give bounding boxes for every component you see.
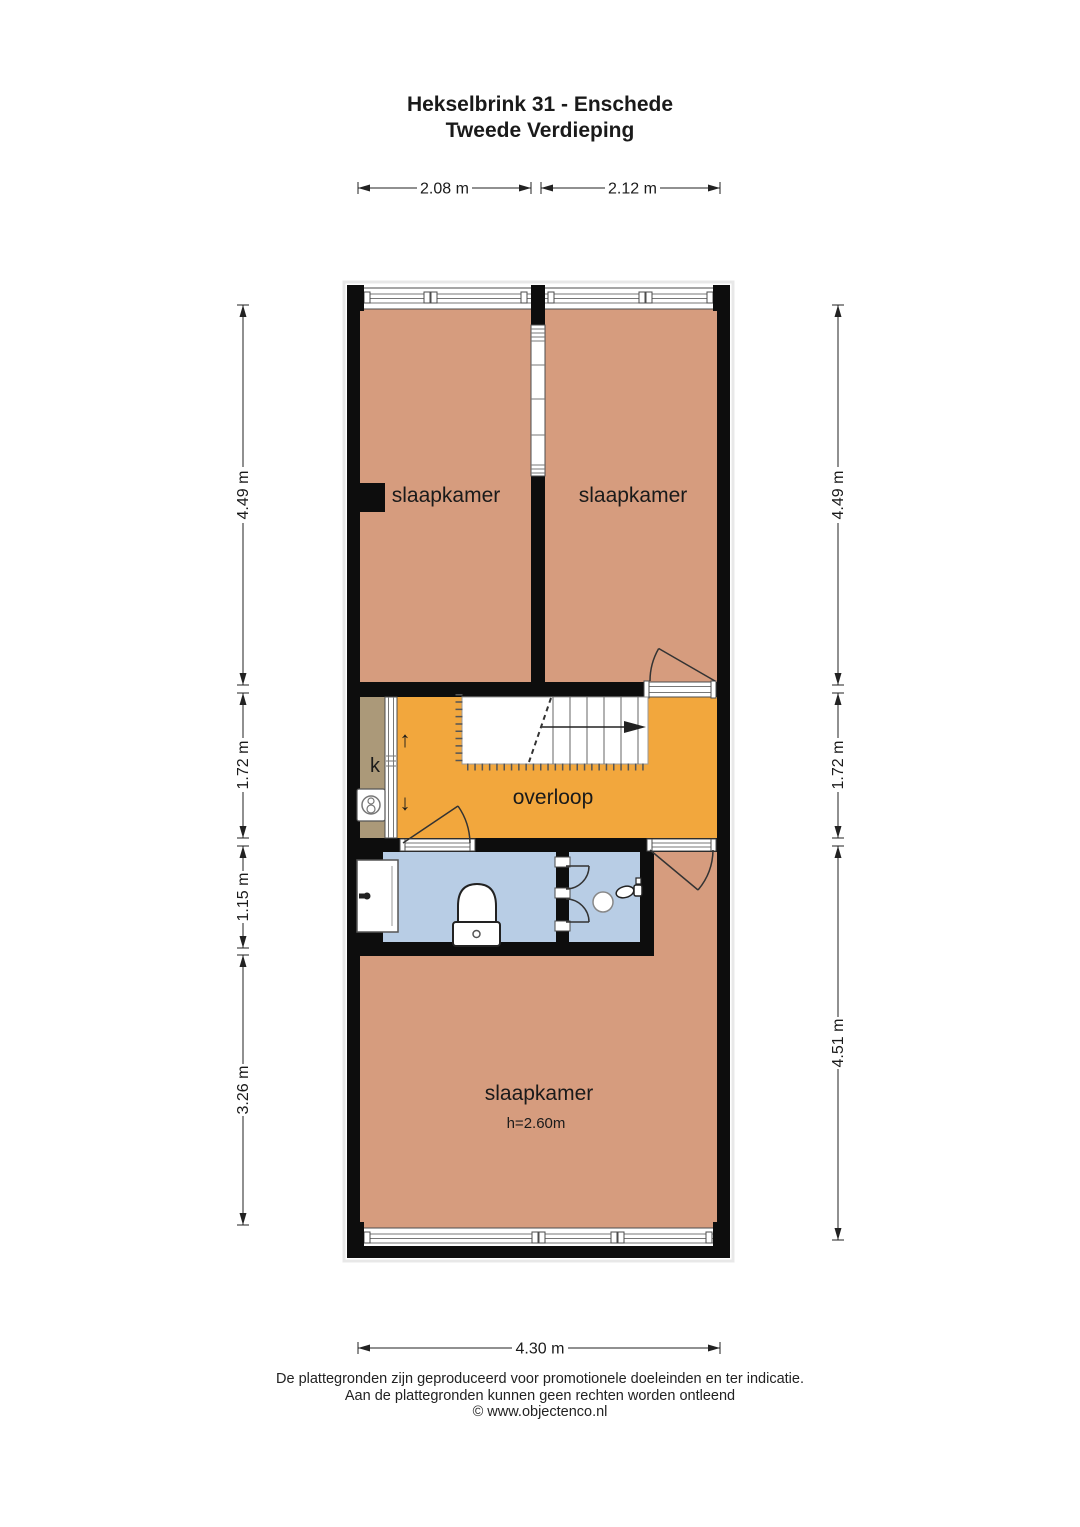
- dimension-top-1: 2.08 m: [358, 181, 531, 198]
- dimension-label: 3.26 m: [235, 1066, 252, 1115]
- door-opening-bedroom-bottom: [647, 839, 716, 851]
- dimension-right-3: 4.51 m: [830, 846, 847, 1240]
- dimension-label: 1.72 m: [830, 741, 847, 790]
- window-divider: [707, 292, 713, 303]
- disclaimer-line-1: De plattegronden zijn geproduceerd voor …: [0, 1371, 1080, 1388]
- shower-drain-icon: [593, 892, 613, 912]
- door-opening-bedroom-top-right: [644, 681, 716, 698]
- cabinet-partition: [531, 325, 545, 476]
- bedroom-top-right-label: slaapkamer: [579, 484, 688, 507]
- dimension-left-1: 4.49 m: [235, 305, 252, 685]
- washbasin-cabinet-icon: [357, 860, 398, 932]
- door-opening-toilet: [400, 839, 475, 851]
- floorplan-page: Hekselbrink 31 - Enschede Tweede Verdiep…: [0, 0, 1080, 1527]
- wall-pillar-top: [531, 285, 545, 325]
- disclaimer: De plattegronden zijn geproduceerd voor …: [0, 1371, 1080, 1421]
- dimension-label: 2.08 m: [420, 181, 469, 198]
- stairs-down-arrow-icon: ↓: [400, 790, 411, 815]
- boiler-icon: [357, 789, 385, 821]
- window-divider: [364, 1232, 370, 1243]
- wall-corner-tl: [347, 285, 364, 311]
- closet-partition: [385, 697, 397, 838]
- wall-shower-right: [640, 838, 654, 956]
- dimension-label: 1.15 m: [235, 873, 252, 922]
- dimension-right-1: 4.49 m: [830, 305, 847, 685]
- landing-label: overloop: [513, 786, 594, 809]
- dimension-label: 1.72 m: [235, 741, 252, 790]
- dimension-label: 4.49 m: [830, 471, 847, 520]
- window-divider: [646, 292, 652, 303]
- copyright-line: © www.objectenco.nl: [0, 1404, 1080, 1421]
- wall-bottom-edge: [347, 1246, 730, 1258]
- wall-corner-tr: [713, 285, 730, 311]
- dimension-label: 4.30 m: [516, 1341, 565, 1358]
- dimension-top-2: 2.12 m: [541, 181, 720, 198]
- dimension-label: 4.49 m: [235, 471, 252, 520]
- stairs-up-arrow-icon: ↑: [400, 727, 411, 752]
- window-divider: [706, 1232, 712, 1243]
- dimension-left-2: 1.72 m: [235, 693, 252, 838]
- window-divider: [639, 292, 645, 303]
- stair-body: [462, 697, 648, 764]
- wall-left: [347, 285, 360, 1258]
- cabinet-body: [531, 325, 545, 476]
- dimension-left-3: 1.15 m: [235, 846, 252, 948]
- wall-right: [717, 285, 730, 1258]
- closet-label: k: [370, 755, 381, 777]
- dimension-bottom: 4.30 m: [358, 1341, 720, 1358]
- closet-partition-body: [385, 697, 397, 838]
- disclaimer-line-2: Aan de plattegronden kunnen geen rechten…: [0, 1388, 1080, 1405]
- bedroom-top-left-label: slaapkamer: [392, 484, 501, 507]
- window-divider: [548, 292, 554, 303]
- window-divider: [532, 1232, 538, 1243]
- dimension-left-4: 3.26 m: [235, 955, 252, 1225]
- dimension-right-2: 1.72 m: [830, 693, 847, 838]
- window-divider: [364, 292, 370, 303]
- tap-icon: [359, 894, 365, 899]
- staircase: [459, 694, 648, 767]
- window-divider: [539, 1232, 545, 1243]
- floor-plan-svg: slaapkamer slaapkamer k overloop ↑ ↓ sla…: [0, 0, 1080, 1527]
- window-divider: [618, 1232, 624, 1243]
- window-divider: [611, 1232, 617, 1243]
- bedroom-bottom-height-label: h=2.60m: [507, 1115, 566, 1132]
- bedroom-bottom-label: slaapkamer: [485, 1082, 594, 1105]
- window-divider: [431, 292, 437, 303]
- toilet-icon: [453, 884, 500, 946]
- dimension-label: 4.51 m: [830, 1019, 847, 1068]
- window-divider: [521, 292, 527, 303]
- dimension-label: 2.12 m: [608, 181, 657, 198]
- chimney-block: [347, 483, 385, 512]
- window-divider: [424, 292, 430, 303]
- window-bottom: [363, 1228, 714, 1248]
- wall-bedroom-divider: [531, 476, 545, 688]
